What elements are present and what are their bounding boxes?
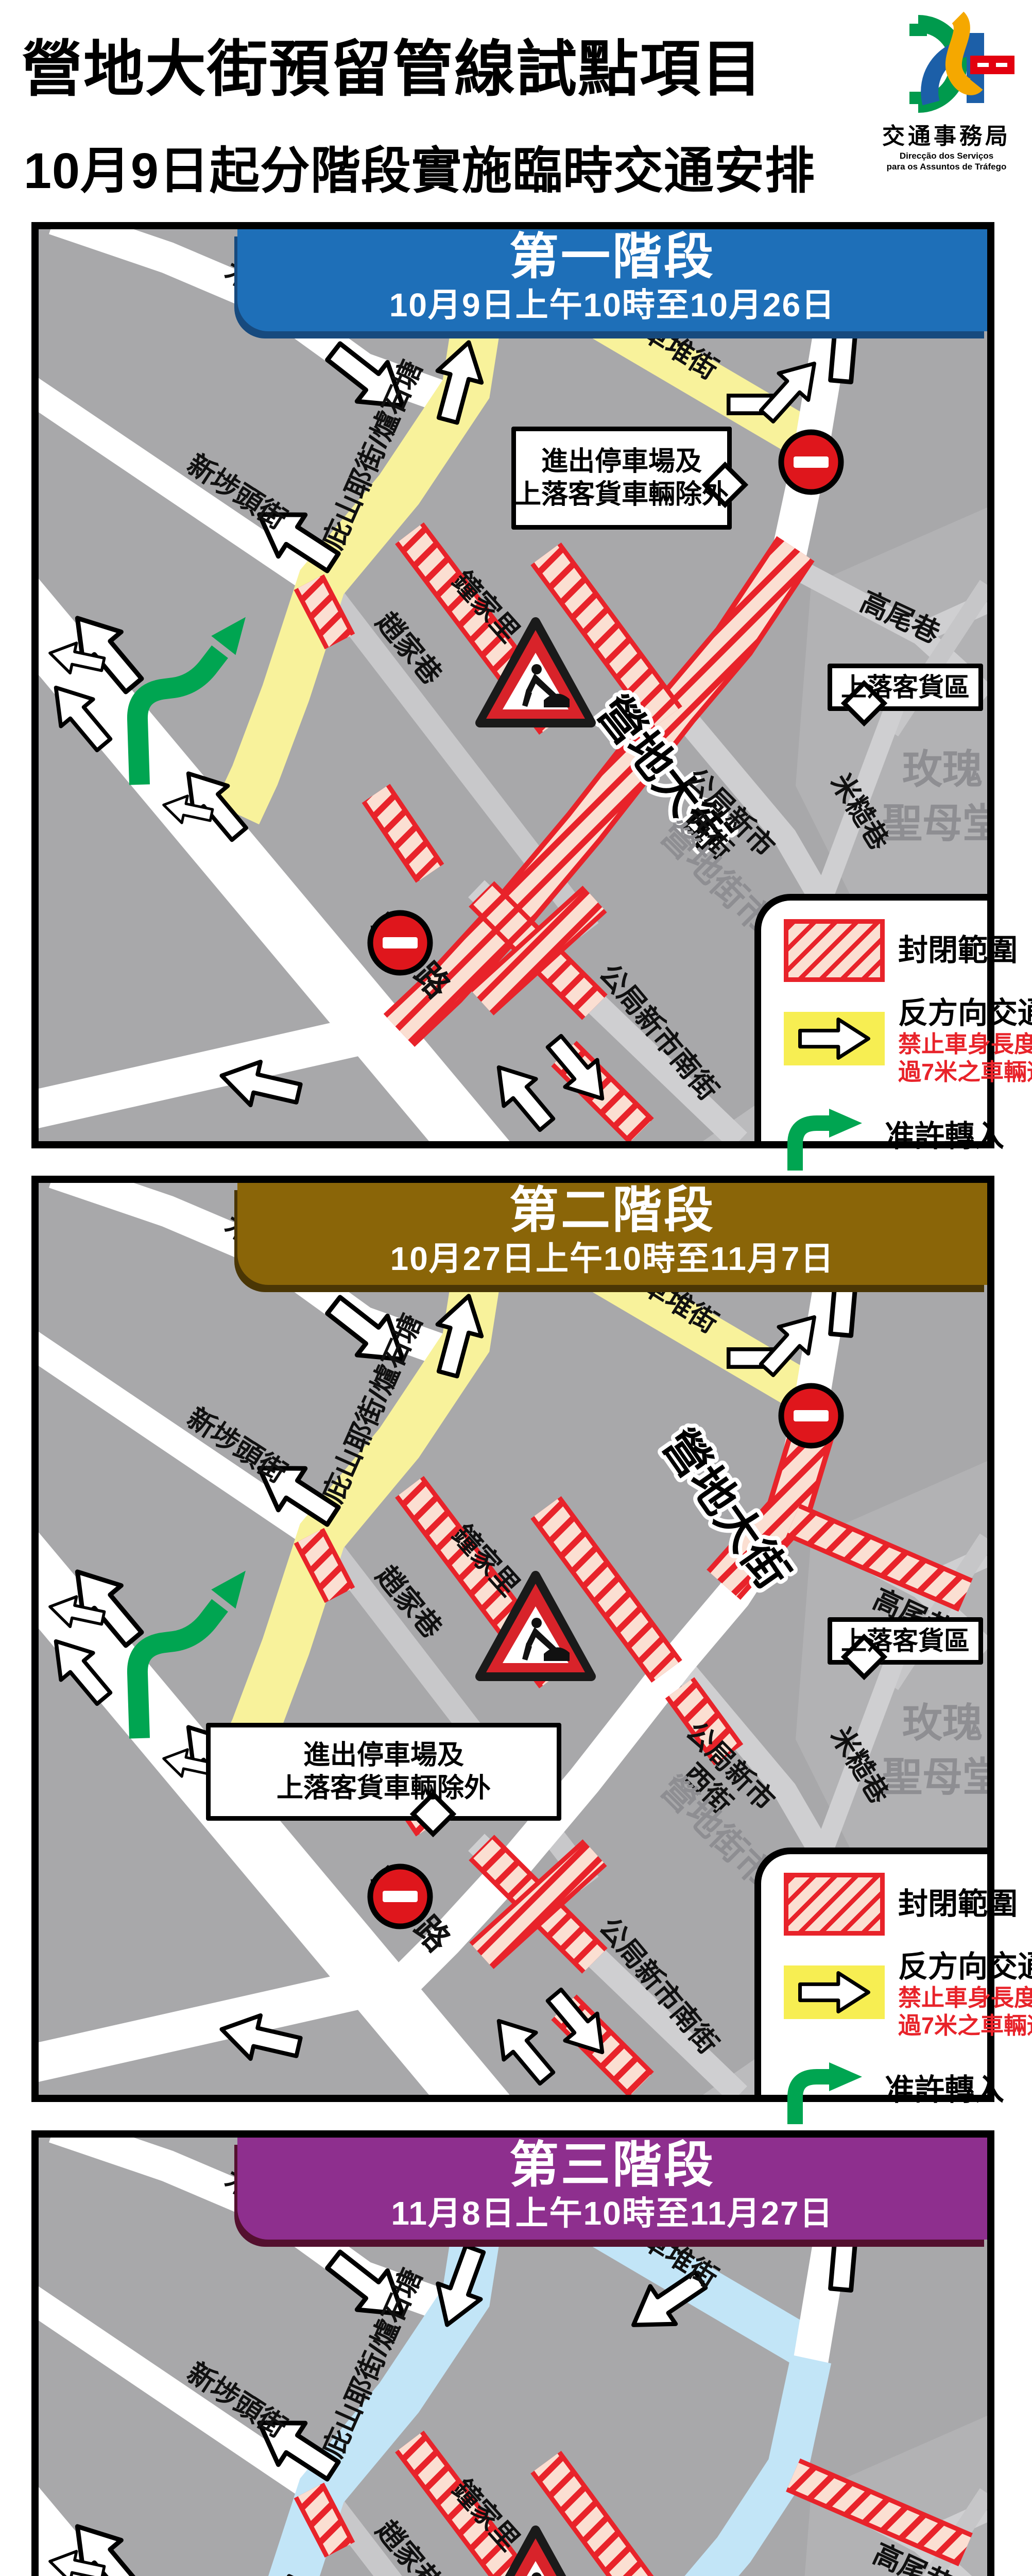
legend-closed-label: 封閉範圍 — [898, 1887, 1018, 1921]
legend-reverse-label: 反方向交通 — [898, 1950, 1032, 1984]
phase-3-period: 11月8日上午10時至11月27日 — [237, 2193, 987, 2233]
phase-1-period: 10月9日上午10時至10月26日 — [237, 285, 987, 325]
page-subtitle: 10月9日起分階段實施臨時交通安排 — [24, 130, 815, 202]
legend-phase-2: 封閉範圍 反方向交通 禁止車身長度超 過7米之車輛通行 准許轉入 — [754, 1848, 987, 2095]
loading-zone-callout: 上落客貨區 — [828, 664, 983, 711]
legend-reverse-label: 反方向交通 — [898, 996, 1032, 1030]
phase-2-badge: 第二階段 10月27日上午10時至11月7日 — [237, 1183, 987, 1285]
map-phase-2: 木橋街 新埗頭街 庇山耶街/爐石塘 草堆街 高尾巷 營地大街 鐘家里 趙家巷 公… — [31, 1176, 994, 2102]
closed-area-swatch — [784, 1873, 885, 1936]
no-entry-sign-south — [370, 913, 430, 973]
reverse-traffic-swatch — [784, 1012, 885, 1065]
carpark-exception-line2: 上落客貨車輛除外 — [277, 1772, 491, 1805]
dsat-logo-icon — [869, 2, 1024, 118]
carpark-exception-line2: 上落客貨車輛除外 — [514, 478, 729, 511]
legend-reverse-note-1: 禁止車身長度超 — [898, 1984, 1032, 2012]
carpark-exception-callout: 進出停車場及 上落客貨車輛除外 — [206, 1723, 561, 1821]
label-rosary-1: 玫瑰 — [902, 1700, 983, 1745]
map-phase-1: 木橋街 新埗頭街 庇山耶街/爐石塘 草堆街 高尾巷 營地大街 鐘家里 趙家巷 公… — [31, 222, 994, 1148]
no-entry-sign-north — [781, 1386, 841, 1446]
loading-zone-label: 上落客貨區 — [841, 671, 970, 704]
closed-area-swatch — [784, 919, 885, 982]
no-entry-sign-north — [781, 432, 841, 492]
reverse-traffic-swatch — [784, 1965, 885, 2019]
reverse-arrow-icon — [796, 1970, 873, 2014]
loading-zone-callout: 上落客貨區 — [828, 1617, 983, 1665]
label-rosary-2: 聖母堂 — [882, 801, 987, 846]
carpark-exception-line1: 進出停車場及 — [541, 445, 702, 478]
map-phase-3: 木橋街 新埗頭街 庇山耶街/爐石塘 草堆街 高尾巷 營地大街 鐘家里 趙家巷 公… — [31, 2130, 994, 2576]
legend-reverse-note-2: 過7米之車輛通行 — [898, 1058, 1032, 1086]
legend-reverse-note-2: 過7米之車輛通行 — [898, 2012, 1032, 2040]
phase-3-name: 第三階段 — [237, 2138, 987, 2193]
carpark-exception-line1: 進出停車場及 — [303, 1739, 464, 1772]
phase-2-name: 第二階段 — [237, 1183, 987, 1239]
legend-turn-label: 准許轉入 — [885, 1120, 1004, 1154]
agency-name-pt-1: Direcção dos Serviços — [869, 150, 1024, 161]
turn-allowed-icon — [784, 2054, 871, 2126]
no-entry-sign-south — [370, 1867, 430, 1926]
page-title: 營地大街預留管線試點項目 — [22, 20, 763, 108]
legend-phase-1: 封閉範圍 反方向交通 禁止車身長度超 過7米之車輛通行 准許轉入 — [754, 894, 987, 1141]
agency-name-zh: 交通事務局 — [869, 117, 1024, 150]
loading-zone-label: 上落客貨區 — [841, 1624, 970, 1657]
legend-closed-label: 封閉範圍 — [898, 934, 1018, 968]
legend-turn-label: 准許轉入 — [885, 2073, 1004, 2107]
carpark-exception-callout: 進出停車場及 上落客貨車輛除外 — [511, 427, 732, 530]
phase-3-badge: 第三階段 11月8日上午10時至11月27日 — [237, 2138, 987, 2240]
phase-1-badge: 第一階段 10月9日上午10時至10月26日 — [237, 229, 987, 331]
turn-allowed-icon — [784, 1100, 871, 1173]
agency-name-pt-2: para os Assuntos de Tráfego — [869, 161, 1024, 172]
reverse-arrow-icon — [796, 1016, 873, 1061]
label-rosary-2: 聖母堂 — [882, 1754, 987, 1800]
label-rosary-1: 玫瑰 — [902, 747, 983, 792]
legend-reverse-note-1: 禁止車身長度超 — [898, 1030, 1032, 1058]
traffic-notice-poster: 營地大街預留管線試點項目 10月9日起分階段實施臨時交通安排 交通事務局 Dir… — [0, 0, 1032, 2576]
phase-2-period: 10月27日上午10時至11月7日 — [237, 1239, 987, 1279]
phase-1-name: 第一階段 — [237, 229, 987, 285]
dsat-logo: 交通事務局 Direcção dos Serviços para os Assu… — [869, 2, 1024, 172]
